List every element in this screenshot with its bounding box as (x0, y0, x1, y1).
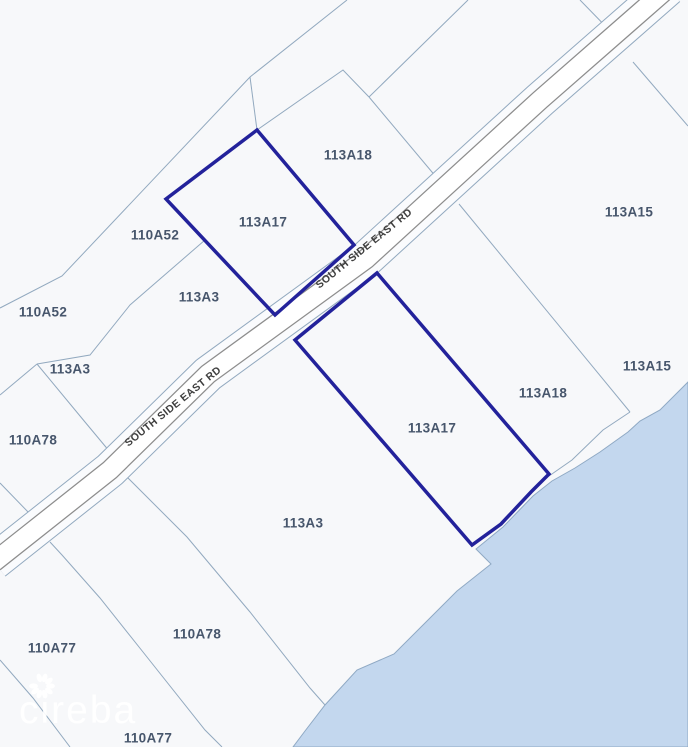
parcel-label: 113A17 (239, 215, 287, 230)
parcel-label: 110A52 (19, 305, 67, 320)
watermark-text: cireba (19, 689, 137, 732)
parcel-label: 113A17 (408, 421, 456, 436)
parcel-label: 113A15 (623, 359, 672, 374)
watermark-logo-petal (29, 683, 38, 688)
parcel-label: 110A52 (131, 228, 179, 243)
parcel-map-canvas[interactable]: SOUTH SIDE EAST RDSOUTH SIDE EAST RD113A… (0, 0, 688, 747)
parcel-label: 110A77 (124, 731, 172, 746)
parcel-label: 113A3 (283, 516, 324, 531)
parcel-label: 113A3 (50, 362, 91, 377)
parcel-label: 113A18 (324, 148, 373, 163)
parcel-label: 110A77 (28, 641, 76, 656)
parcel-label: 110A78 (9, 433, 58, 448)
parcel-label: 113A15 (605, 205, 654, 220)
parcel-map-stage: SOUTH SIDE EAST RDSOUTH SIDE EAST RD113A… (0, 0, 688, 747)
parcel-label: 113A18 (519, 386, 568, 401)
parcel-label: 113A3 (179, 290, 220, 305)
parcel-label: 110A78 (173, 627, 222, 642)
